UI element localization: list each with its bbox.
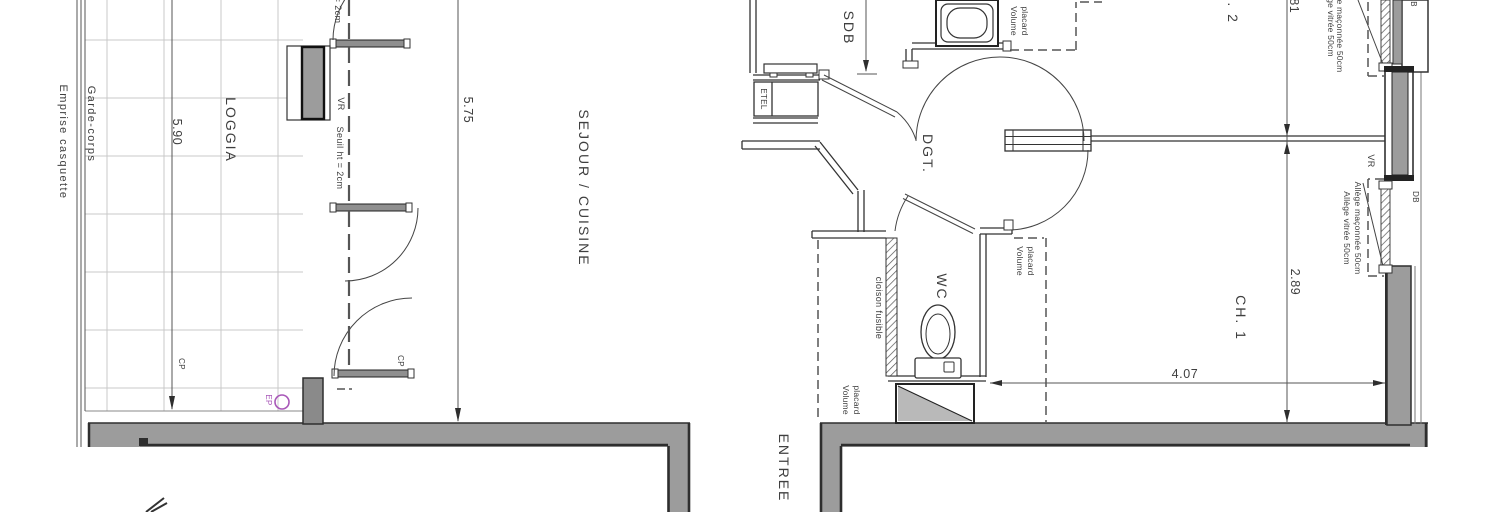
annotation-db-top: DB: [1409, 0, 1418, 7]
open-casement-hatch: [1381, 0, 1390, 64]
facade-box: [1402, 0, 1428, 72]
dim-2-81: 2.81: [1287, 0, 1301, 13]
annotation-emprise-casquette: Emprise casquette: [57, 85, 69, 200]
cloison-fusible-wall: [886, 238, 897, 376]
door-swing-arc-large: [916, 57, 1084, 141]
annotation-vr-right: VR: [1366, 154, 1376, 167]
window-glazing: [1392, 72, 1408, 175]
exterior-wall-bottom-left: [88, 423, 690, 512]
door-swing-arc: [895, 196, 908, 231]
frame-cap: [1379, 265, 1392, 273]
room-label-dgt: DGT.: [920, 134, 936, 174]
floor-plan-canvas: Emprise casquette Garde-corps 5.90 LOGGI…: [0, 0, 1504, 512]
annotation-volume-top: Volume: [1009, 6, 1019, 36]
door-sill: [336, 370, 412, 377]
loggia-tile-grid: [85, 0, 303, 411]
door-hinge-plate: [819, 70, 829, 79]
ch-rooms-divider: [1005, 130, 1385, 151]
door-swing-arc: [345, 208, 418, 281]
annotation-allege-vitree-mid: Allège vitrée 50cm: [1342, 191, 1352, 265]
door-sill: [334, 40, 408, 47]
room-label-loggia: LOGGIA: [223, 97, 239, 163]
annotation-etel: ETEL: [759, 88, 768, 109]
door-sill: [334, 204, 410, 211]
wall-stub-loggia: [303, 378, 323, 424]
wall-cap: [1004, 220, 1013, 230]
floor-plan-drawing: Emprise casquette Garde-corps 5.90 LOGGI…: [0, 0, 1504, 512]
casement-swing-line: [1358, 0, 1383, 64]
dim-5-75: 5.75: [461, 97, 475, 124]
dim-5-90: 5.90: [170, 119, 184, 146]
annotation-placard-left: placard: [852, 385, 862, 414]
window-unit: [302, 47, 324, 119]
door-swing-arc: [333, 0, 408, 40]
annotation-cp-left: CP: [177, 358, 186, 370]
annotation-allege-vitree-top: Allège vitrée 50cm: [1326, 0, 1336, 57]
room-label-wc: WC: [934, 273, 950, 300]
room-label-ch1: CH. 1: [1233, 295, 1249, 341]
annotation-placard-ch1: placard: [1026, 246, 1036, 275]
room-label-sdb: SDB: [841, 11, 857, 46]
annotation-placard-top: placard: [1020, 6, 1030, 35]
annotation-ep: EP: [264, 394, 273, 405]
room-label-entree: ENTREE: [776, 434, 792, 503]
north-arrow-partial: [146, 498, 167, 512]
dim-2-89: 2.89: [1288, 269, 1302, 296]
annotation-seuil-mid: Seuil ht = 2cm: [335, 127, 345, 190]
door-swing-arc: [1008, 150, 1088, 230]
annotation-volume-left: Volume: [841, 385, 851, 415]
annotation-vr-loggia: VR: [336, 97, 346, 110]
annotation-garde-corps: Garde-corps: [85, 86, 97, 163]
room-label-ch2: CH. 2: [1225, 0, 1241, 24]
annotation-cloison-fusible: cloison fusible: [874, 277, 884, 340]
annotation-seuil-top: Seuil ht = 2cm: [333, 0, 343, 23]
ep-downpipe-symbol: [275, 395, 289, 409]
toilet: [915, 305, 961, 378]
room-label-sejour-cuisine: SEJOUR / CUISINE: [576, 109, 592, 266]
dim-4-07: 4.07: [1172, 367, 1199, 381]
open-casement-hatch: [1381, 189, 1390, 265]
duct-shaft: [896, 384, 974, 423]
annotation-db-right: DB: [1411, 191, 1420, 203]
annotation-allege-maconnee-mid: Allège maçonnée 50cm: [1353, 182, 1363, 275]
exterior-wall-bottom-right: [820, 423, 1428, 512]
annotation-cp-right: CP: [396, 355, 405, 367]
annotation-allege-maconnee-top: Allège maçonnée 50cm: [1335, 0, 1345, 72]
window-jamb: [1393, 0, 1402, 64]
wall-cap: [1003, 41, 1011, 51]
wall-cap: [903, 61, 918, 68]
bathtub: [936, 0, 998, 46]
annotation-volume-ch1: Volume: [1015, 246, 1025, 276]
garde-corps-lines: [77, 0, 85, 447]
casement-swing-line: [1363, 183, 1383, 266]
loggia-bay: [287, 0, 418, 389]
frame-cap: [1379, 181, 1392, 189]
